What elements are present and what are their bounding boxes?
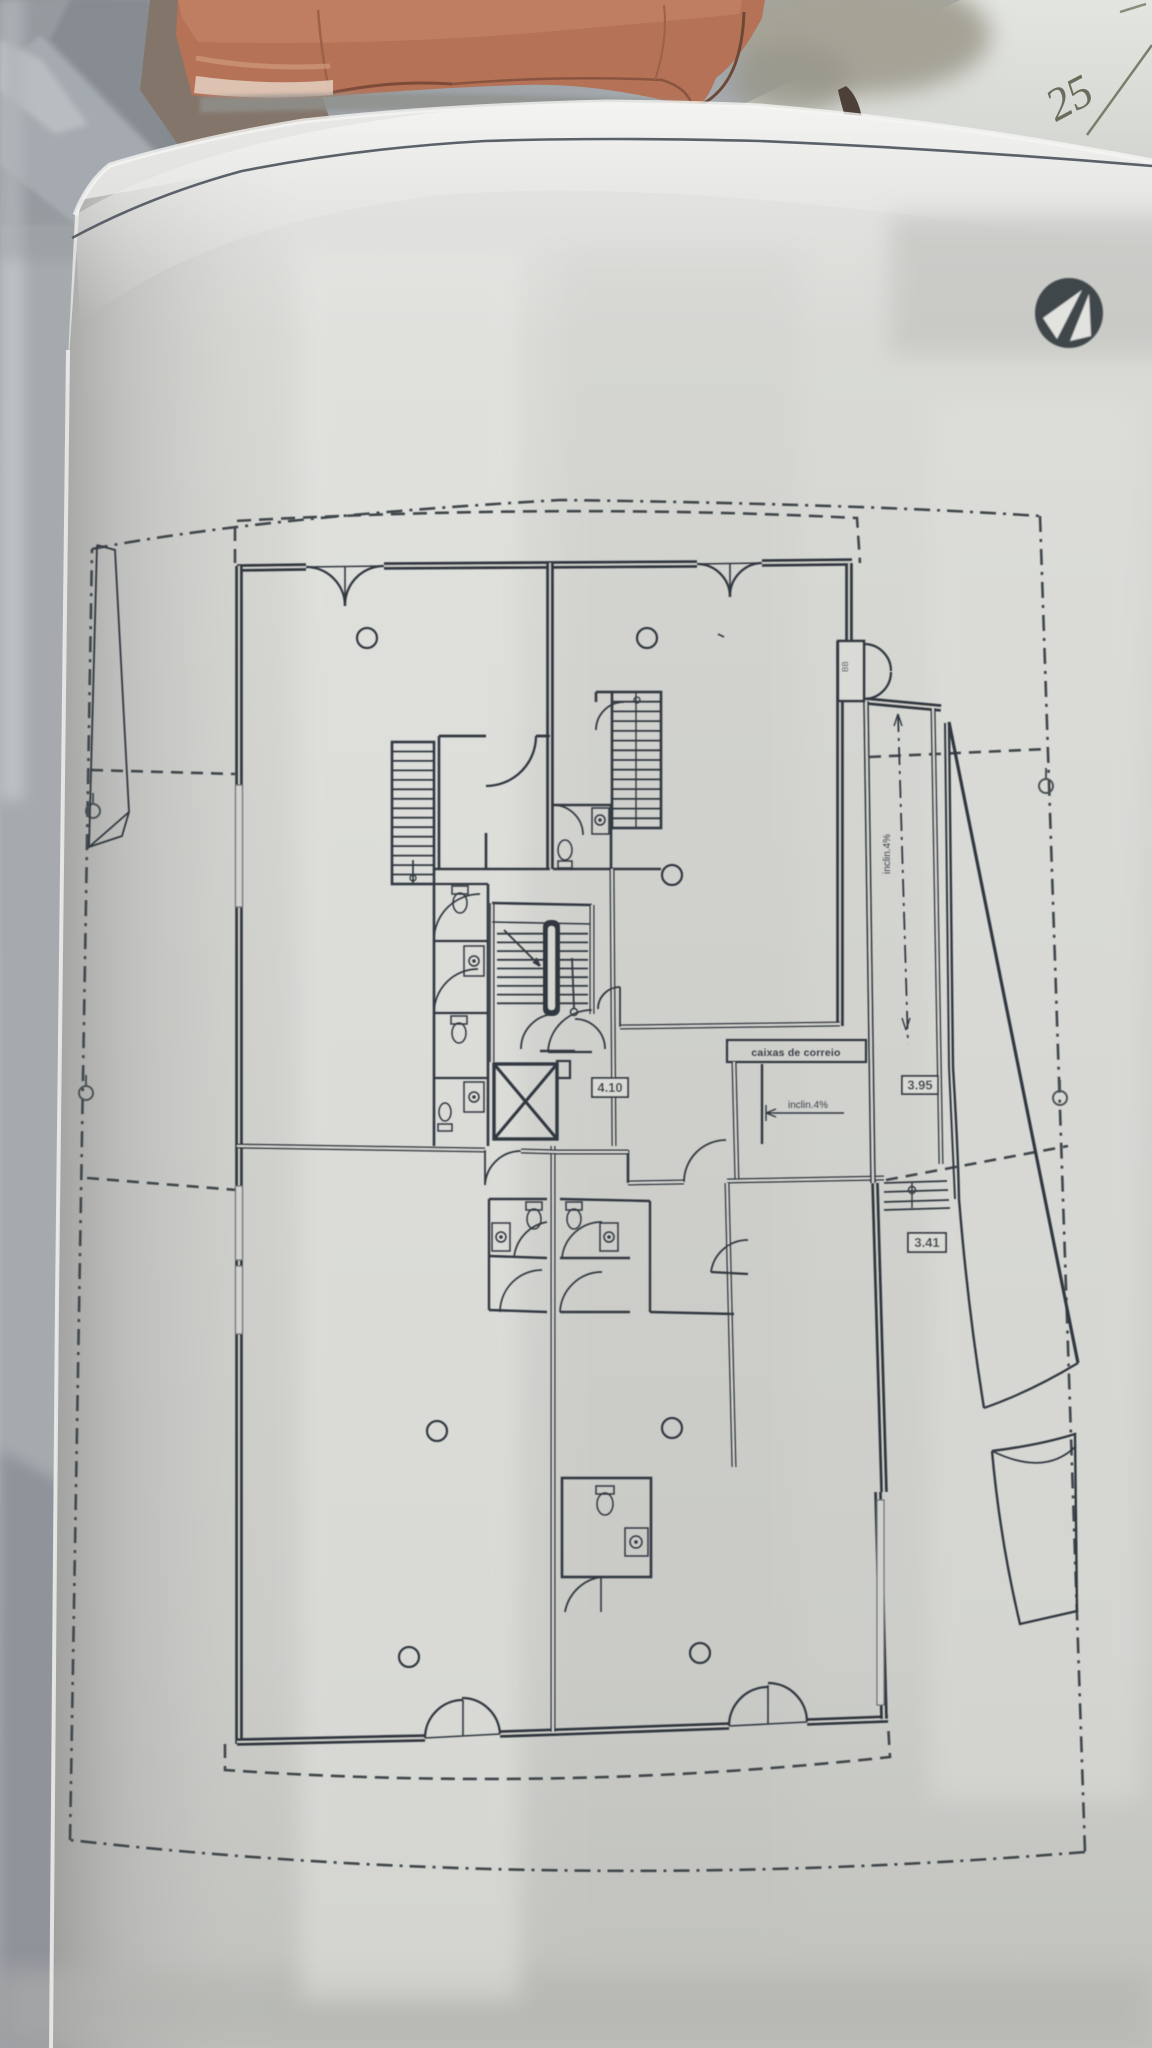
svg-text:caixas de correio: caixas de correio xyxy=(751,1047,840,1059)
svg-text:BB: BB xyxy=(841,661,850,672)
svg-text:inclin.4%: inclin.4% xyxy=(882,834,893,874)
svg-text:3.95: 3.95 xyxy=(907,1077,932,1092)
svg-text:3.41: 3.41 xyxy=(914,1235,939,1250)
svg-text:4.10: 4.10 xyxy=(597,1080,622,1095)
svg-text:inclin.4%: inclin.4% xyxy=(788,1100,828,1111)
